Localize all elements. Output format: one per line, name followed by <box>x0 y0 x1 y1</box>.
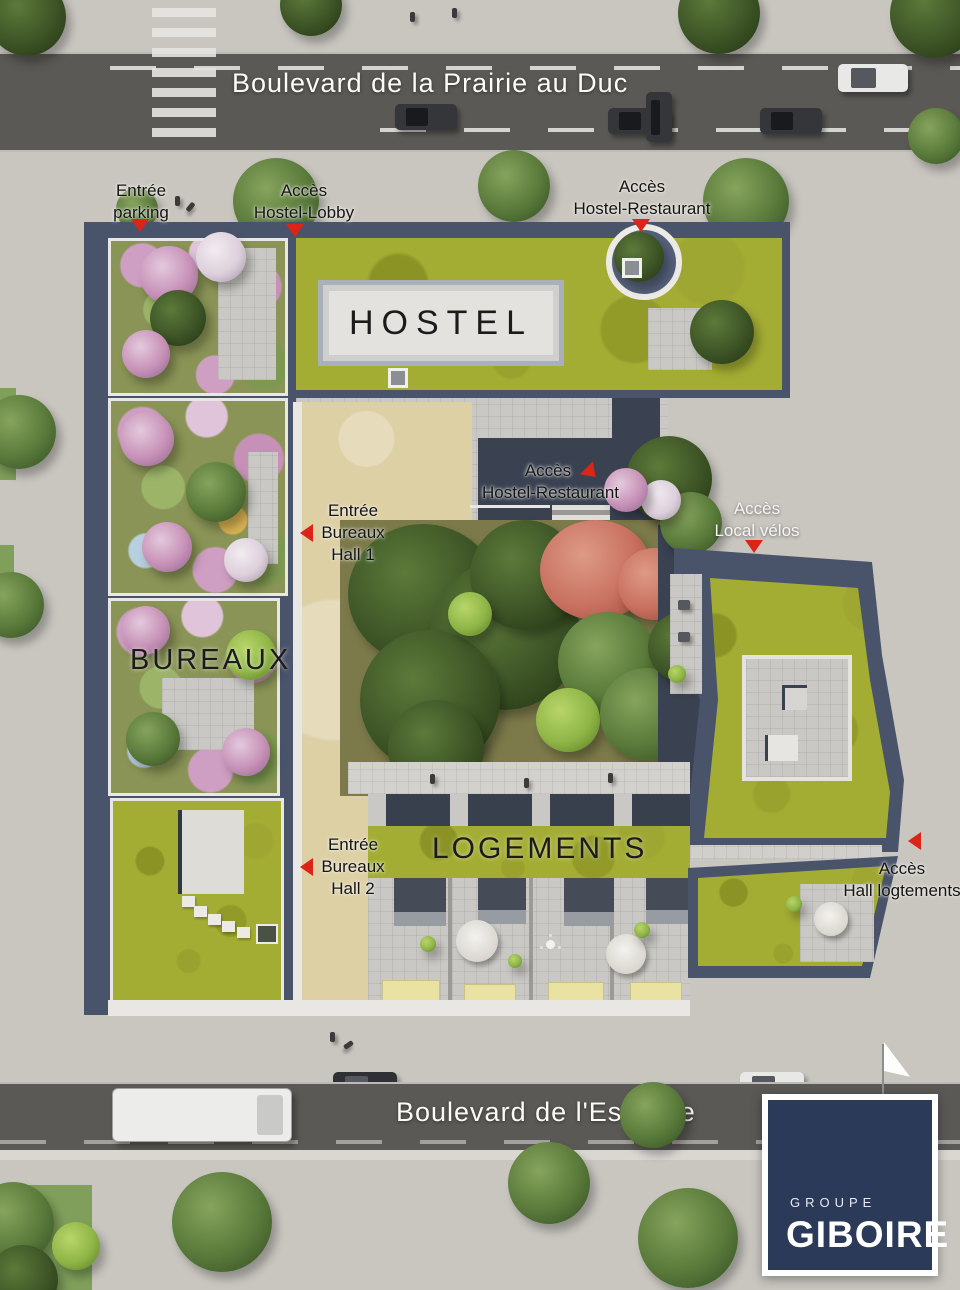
parasol <box>814 902 848 936</box>
tree-icon <box>536 688 600 752</box>
tree-icon <box>478 150 550 222</box>
roof-section <box>564 878 614 926</box>
roof-hatch <box>782 685 807 710</box>
tree-icon <box>186 462 246 522</box>
arrow-icon <box>632 219 650 232</box>
arrow-icon <box>131 219 149 232</box>
stepping-stone <box>208 914 221 925</box>
tree-icon <box>690 300 754 364</box>
pedestrian <box>410 12 415 22</box>
car <box>646 92 672 142</box>
colonnade <box>368 794 690 828</box>
tree-icon <box>620 1082 686 1148</box>
annotation-line: Hostel-Restaurant <box>558 198 726 220</box>
annotation-line: Accès <box>558 176 726 198</box>
roof-section <box>478 878 526 924</box>
car <box>838 64 908 92</box>
stepping-stone <box>237 927 250 938</box>
roof-section <box>646 878 690 924</box>
pedestrian <box>452 8 457 18</box>
annotation-line: Accès <box>840 858 960 880</box>
tree-icon <box>196 232 246 282</box>
annotation-acces-hall-logements: Accès Hall logtements <box>840 858 960 902</box>
annotation-acces-hostel-lobby: Accès Hostel-Lobby <box>228 180 380 224</box>
crosswalk <box>152 8 216 148</box>
tree-icon <box>508 1142 590 1224</box>
annotation-acces-hostel-restaurant-top: Accès Hostel-Restaurant <box>558 176 726 220</box>
logo-brand-label: GIBOIRE <box>786 1214 949 1256</box>
annotation-line: Hall 1 <box>312 544 394 566</box>
arrow-icon <box>286 224 304 237</box>
hostel-label: HOSTEL <box>349 304 533 343</box>
stepping-stone <box>222 921 235 932</box>
pedestrian <box>608 773 613 783</box>
canopy-edge <box>470 505 550 508</box>
facade-edge <box>293 402 302 1002</box>
annotation-entree-bureaux-hall-1: Entrée Bureaux Hall 1 <box>312 500 394 566</box>
annotation-line: Accès <box>228 180 380 202</box>
tree-icon <box>448 592 492 636</box>
arrow-icon <box>300 858 313 876</box>
tree-icon <box>52 1222 100 1270</box>
roof-hatch <box>256 924 278 944</box>
plant-icon <box>420 936 436 952</box>
logo-group-label: GROUPE <box>790 1195 876 1210</box>
annotation-line: Local vélos <box>698 520 816 542</box>
roof-hatch <box>765 735 798 761</box>
tree-icon <box>678 0 760 54</box>
tree-icon <box>224 538 268 582</box>
roof-hatch <box>388 368 408 388</box>
terrace-wall <box>529 878 533 1008</box>
pedestrian <box>430 774 435 784</box>
parasol <box>456 920 498 962</box>
annotation-entree-parking: Entrée parking <box>86 180 196 224</box>
annotation-entree-bureaux-hall-2: Entrée Bureaux Hall 2 <box>312 834 394 900</box>
car <box>760 108 822 134</box>
annotation-line: Bureaux <box>312 522 394 544</box>
annotation-line: Bureaux <box>312 856 394 878</box>
site-edge <box>108 1000 690 1016</box>
annotation-line: Entrée <box>86 180 196 202</box>
terrace-wall <box>448 878 452 1008</box>
pedestrian <box>524 778 529 788</box>
annotation-line: Hall 2 <box>312 878 394 900</box>
tree-icon <box>890 0 960 58</box>
tree-icon <box>0 0 66 56</box>
bus <box>112 1088 292 1142</box>
annotation-line: Hall logtements <box>840 880 960 902</box>
tree-icon <box>0 395 56 469</box>
plant-icon <box>786 896 802 912</box>
tree-icon <box>280 0 342 36</box>
tree-icon <box>908 108 960 164</box>
tree-icon <box>122 330 170 378</box>
plant-icon <box>508 954 522 968</box>
annotation-line: Entrée <box>312 834 394 856</box>
tree-icon <box>668 665 686 683</box>
annotation-line: Hostel-Lobby <box>228 202 380 224</box>
terrace-table <box>546 940 555 949</box>
logements-label: LOGEMENTS <box>432 832 647 866</box>
balcony-furniture <box>678 632 690 642</box>
tree-icon <box>222 728 270 776</box>
car <box>395 104 457 130</box>
roof-section <box>394 878 446 926</box>
plant-icon <box>634 922 650 938</box>
site-plan: Boulevard de la Prairie au Duc HOSTEL <box>0 0 960 1290</box>
terraces <box>368 878 690 1008</box>
walkway <box>348 762 690 794</box>
pedestrian <box>343 1040 354 1050</box>
roof-patio <box>742 655 852 781</box>
annotation-line: Accès <box>698 498 816 520</box>
bureaux-label: BUREAUX <box>130 644 291 677</box>
stepping-stone <box>194 906 207 917</box>
annotation-line: Entrée <box>312 500 394 522</box>
roof-structure <box>178 810 244 894</box>
arrow-icon <box>745 540 763 553</box>
arrow-icon <box>908 832 921 850</box>
tree-icon <box>172 1172 272 1272</box>
groupe-giboire-logo: GROUPE GIBOIRE <box>762 1094 938 1276</box>
tree-icon <box>0 572 44 638</box>
balcony-furniture <box>678 600 690 610</box>
hostel-skylight: HOSTEL <box>318 280 564 366</box>
parasol <box>606 934 646 974</box>
roof-hatch <box>622 258 642 278</box>
arrow-icon <box>300 524 313 542</box>
tree-icon <box>638 1188 738 1288</box>
tree-icon <box>120 412 174 466</box>
tree-icon <box>126 712 180 766</box>
logements-building-east <box>660 540 908 858</box>
pedestrian <box>330 1032 335 1042</box>
tree-icon <box>142 522 192 572</box>
street-name-top: Boulevard de la Prairie au Duc <box>232 68 628 99</box>
annotation-acces-local-velos: Accès Local vélos <box>698 498 816 542</box>
annotation-line: Hostel-Restaurant <box>482 482 614 504</box>
